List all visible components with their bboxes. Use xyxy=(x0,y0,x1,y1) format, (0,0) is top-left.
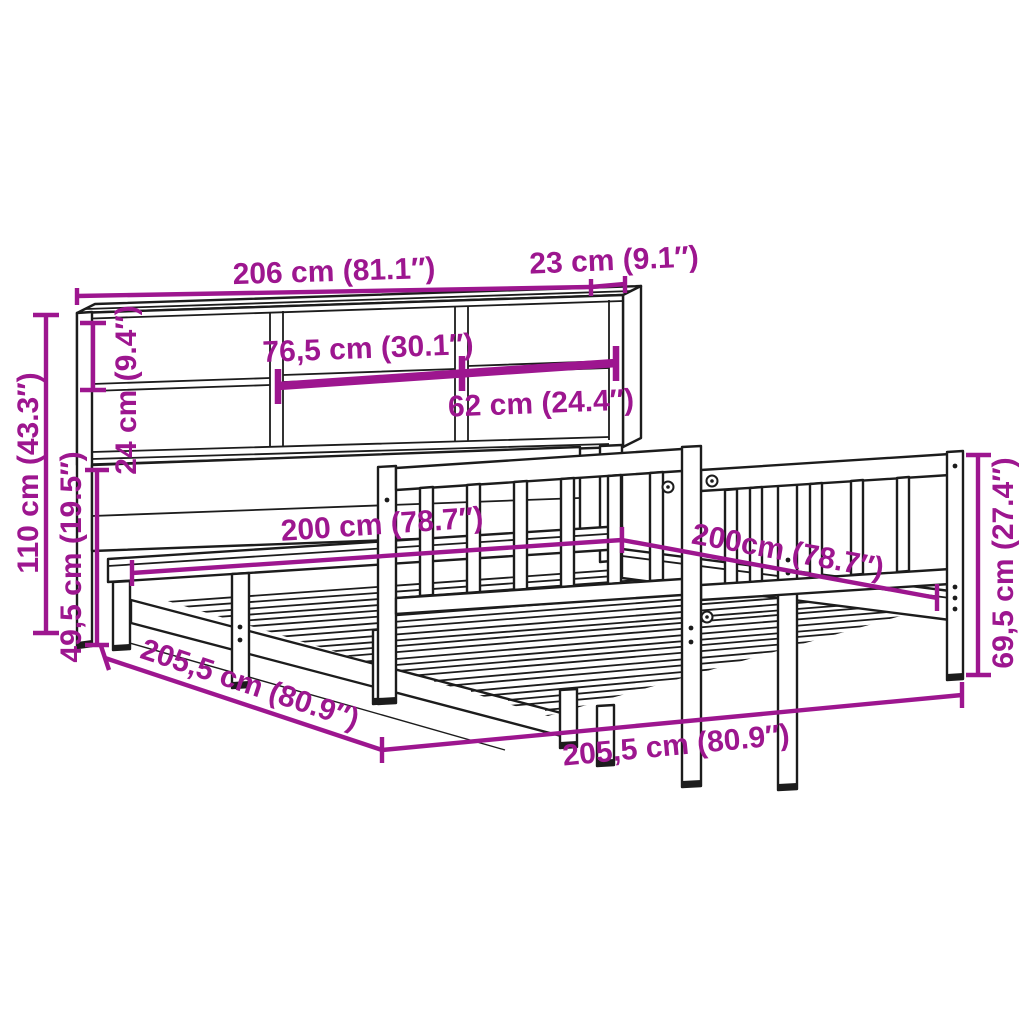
dimension-label-frame-width: 205,5 cm (80.9″) xyxy=(561,718,791,772)
dimension-top-depth: 23 cm (9.1″) xyxy=(529,240,700,293)
footboard-right-post xyxy=(947,451,963,680)
dimension-label-headboard-height: 110 cm (43.3″) xyxy=(12,372,45,573)
bookcase-right-face xyxy=(623,286,641,447)
headboard-spindle xyxy=(561,478,574,587)
furniture-drawing xyxy=(77,286,963,790)
dimension-label-top-depth: 23 cm (9.1″) xyxy=(529,240,700,280)
footboard-top-rail xyxy=(701,454,950,491)
dimension-label-overall-width: 206 cm (81.1″) xyxy=(232,252,436,291)
headboard-spindle xyxy=(608,475,621,584)
dimension-label-top-section-height: 24 cm (9.4″) xyxy=(110,305,143,474)
headboard-spindle xyxy=(650,472,663,581)
headboard-spindle xyxy=(514,481,527,590)
footboard-spindle xyxy=(897,477,909,572)
headboard-spindle xyxy=(467,484,480,593)
dimension-headboard-height: 110 cm (43.3″) xyxy=(12,315,59,633)
bed-with-bookcase-dimension-diagram: 206 cm (81.1″) 23 cm (9.1″) 76,5 cm (30.… xyxy=(0,0,1024,1024)
head-left-leg xyxy=(113,581,130,650)
dimension-label-headboard-lower-height: 49,5 cm (19.5″) xyxy=(55,451,88,662)
dimension-footboard-height: 69,5 cm (27.4″) xyxy=(966,455,1020,675)
dimension-label-footboard-height: 69,5 cm (27.4″) xyxy=(987,457,1020,668)
headboard-spindle xyxy=(420,487,433,596)
